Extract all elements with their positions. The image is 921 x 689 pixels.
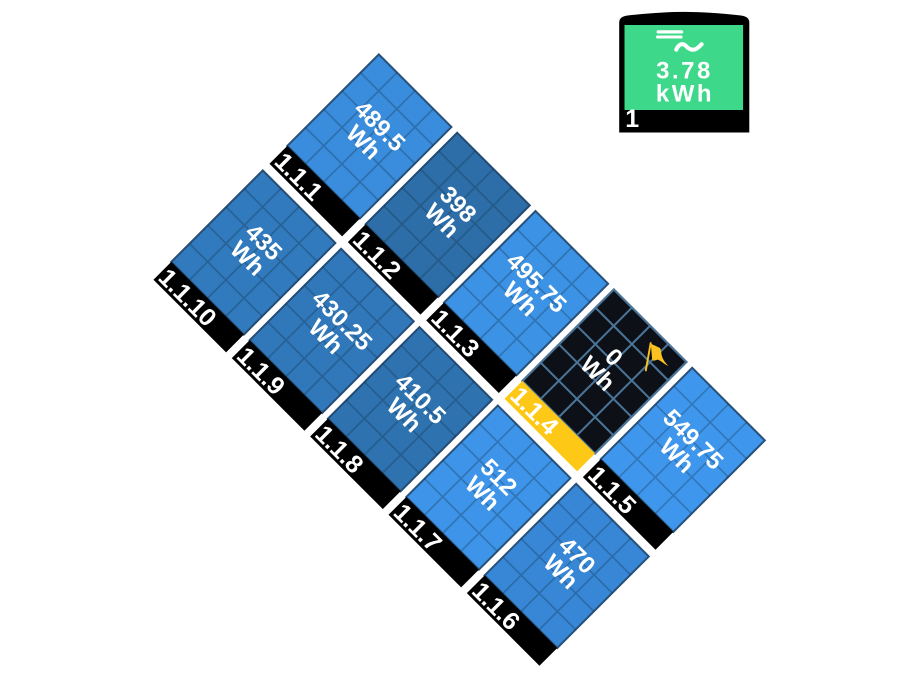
svg-text:1: 1 — [625, 105, 639, 133]
svg-text:kWh: kWh — [656, 80, 714, 107]
